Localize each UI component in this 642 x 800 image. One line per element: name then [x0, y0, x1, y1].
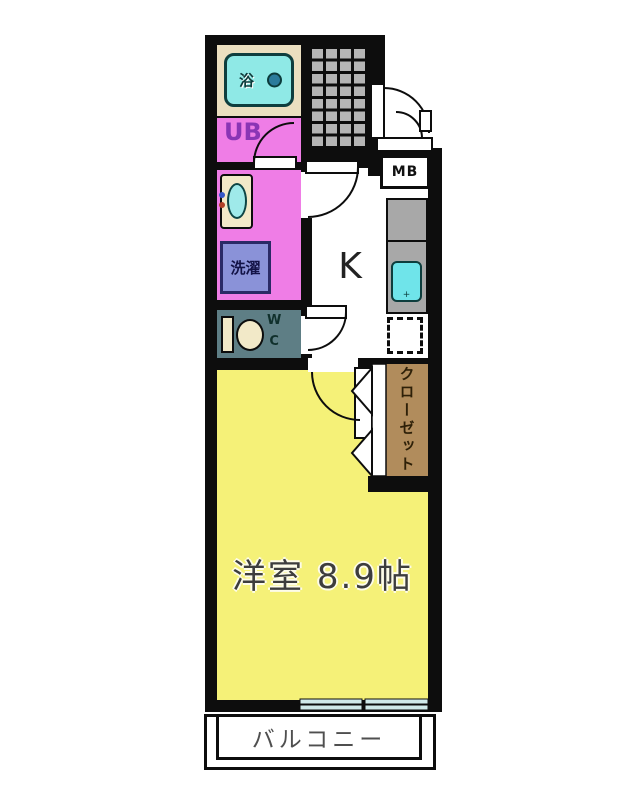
laundry-label: 洗濯 [230, 257, 260, 278]
refrigerator-space [387, 317, 423, 354]
unit-bath-room: UB [217, 118, 301, 162]
cold-tap-icon [219, 192, 225, 198]
bath-label: 浴 [239, 70, 254, 91]
closet: クローゼット [386, 364, 428, 476]
kitchen-label: K [312, 246, 388, 287]
wc-label: W C [267, 311, 281, 353]
toilet-tank-icon [221, 316, 234, 353]
entrance-recess [385, 35, 442, 148]
balcony: バルコニー [216, 714, 422, 760]
closet-label: クローゼット [397, 366, 418, 474]
balcony-label: バルコニー [252, 720, 387, 754]
unit-bath-label: UB [224, 118, 262, 146]
wall-segment [368, 148, 380, 176]
main-room-label: 洋室 8.9帖 [217, 549, 428, 598]
toilet-bowl-icon [236, 319, 264, 351]
wall-segment [368, 476, 428, 492]
meter-box: MB [380, 155, 430, 189]
faucet-icon: + [403, 290, 411, 300]
meter-box-label: MB [392, 164, 419, 180]
kitchen-sink-icon: + [391, 261, 422, 302]
floor-plan: 浴 UB 洗濯 W C MB + K クローゼット [0, 0, 642, 800]
laundry-machine-space: 洗濯 [220, 241, 271, 294]
hot-tap-icon [219, 202, 225, 208]
bathtub-icon: 浴 [224, 53, 294, 107]
drain-icon [267, 73, 282, 88]
washbasin-bowl-icon [227, 183, 247, 219]
counter-divider [386, 240, 428, 242]
entrance-tile-floor [308, 42, 372, 150]
